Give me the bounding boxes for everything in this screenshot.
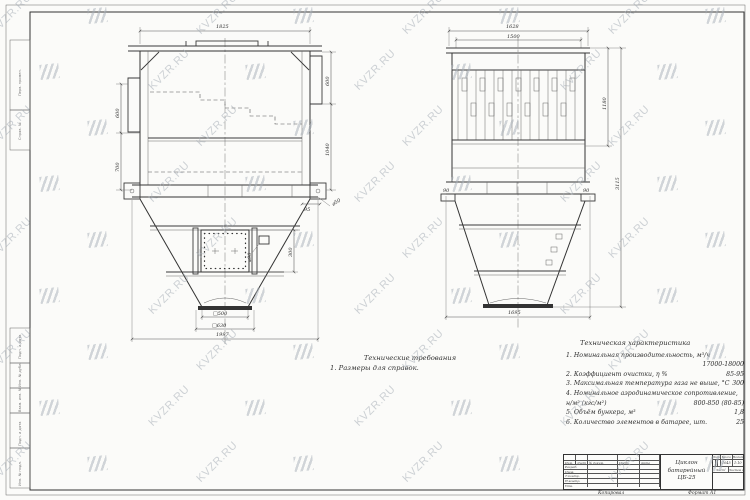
drawing-sheet: { "watermark": { "text": "KVZR.RU" }, "t…	[0, 0, 750, 500]
format-caption: Формат А1	[688, 491, 716, 496]
col-list: Лист	[576, 461, 588, 465]
dim-front-inner-width: 1500	[507, 34, 521, 40]
mass-value: 1045	[721, 460, 732, 466]
item-value: 800-850 (80-85)	[694, 399, 744, 409]
sheets-label: Листов 1	[729, 467, 744, 472]
dim-door-handle: ⌀90	[247, 252, 253, 262]
item-label: 3. Максимальная температура газа не выше…	[566, 380, 730, 387]
item-label: 2. Коэффициент очистки, η %	[566, 371, 667, 378]
dim-corner-right: 90	[583, 188, 590, 194]
margin-label: Взам. инв. №	[18, 387, 22, 412]
hopper-ladder	[546, 234, 562, 265]
lit-label: Лит.	[713, 455, 721, 459]
technical-characteristics: Техническая характеристика 1. Номинальна…	[566, 339, 744, 427]
item-value: 85-95	[726, 370, 744, 380]
title-block-signatures: Изм. Лист № докум. Подп. Дата Разраб. Пр…	[564, 455, 661, 489]
col-podp: Подп.	[618, 461, 640, 465]
row-tkontr: Т.контр.	[564, 474, 588, 478]
row-utv: Утв.	[564, 484, 588, 488]
tech-char-item: 3. Максимальная температура газа не выше…	[566, 379, 744, 389]
margin-label: Перв. примен.	[18, 69, 22, 96]
dim-upper-height: 1180	[602, 96, 608, 110]
doc-title-line: Циклон	[661, 460, 712, 468]
dim-total-height: 3115	[615, 177, 621, 190]
item-label: 5. Объём бункера, м³	[566, 409, 636, 416]
dim-outlet-height: 600	[325, 76, 331, 86]
margin-label: Инв. № дубл.	[18, 362, 22, 387]
cyclone-side-view: ⌀90 1825 600 700 600 1040 95 ⌀50 300	[115, 24, 343, 344]
dim-outlet-square: □500	[213, 311, 228, 317]
row-razrab: Разраб.	[564, 465, 588, 469]
title-block-attrs: Лит. Масса Масштаб 1045 1:10 Лист Листов…	[713, 455, 743, 489]
scale-label: Масштаб	[733, 455, 744, 459]
tech-char-item: 4. Номинальное аэродинамическое сопротив…	[566, 389, 744, 408]
dim-flange-square: □630	[212, 323, 227, 329]
sheet-label: Лист	[713, 467, 729, 472]
margin-label: Инв. № подл.	[18, 461, 22, 486]
tech-req-title: Технические требования	[330, 353, 490, 363]
copied-caption: Копировал	[598, 491, 624, 496]
item-label: 6. Количество элементов в батарее, шт.	[566, 419, 707, 426]
element-spacers	[462, 78, 575, 116]
dim-corner-offset: 95	[304, 207, 310, 213]
item-value: 17000-18000	[703, 360, 744, 370]
dim-inlet-height: 600	[115, 108, 121, 118]
dim-corner-left: 90	[443, 188, 450, 194]
scale-value: 1:10	[733, 460, 743, 466]
item-value: 25	[736, 418, 744, 428]
dim-hopper-span: 1695	[508, 310, 521, 316]
cyclone-front-view: 1628 1500 90 90	[441, 24, 626, 330]
tech-char-item: 5. Объём бункера, м³ 1,8	[566, 408, 744, 418]
dim-front-top-width: 1628	[506, 24, 519, 30]
margin-label: Подп. и дата	[18, 422, 22, 446]
col-izm: Изм.	[564, 461, 576, 465]
dim-bolt-hole: ⌀50	[331, 197, 343, 207]
row-nkontr: Н.контр.	[564, 479, 588, 483]
document-title: Циклон батарейный ЦБ-25	[661, 455, 713, 489]
doc-title-line: батарейный	[661, 468, 712, 476]
dim-door-height: 300	[288, 247, 294, 257]
title-block: Изм. Лист № докум. Подп. Дата Разраб. Пр…	[563, 454, 744, 490]
row-prov: Пров.	[564, 470, 588, 474]
margin-label: Справ. №	[18, 122, 22, 140]
item-value: 300	[732, 379, 744, 389]
dim-overall-width: 1997	[216, 332, 230, 338]
tech-char-item: 1. Номинальная производительность, м³/ч …	[566, 351, 744, 370]
item-value: 1,8	[734, 408, 744, 418]
tech-char-title: Техническая характеристика	[580, 339, 744, 349]
dim-body-height: 1040	[325, 142, 331, 156]
tech-char-item: 6. Количество элементов в батарее, шт. 2…	[566, 418, 744, 428]
tech-char-item: 2. Коэффициент очистки, η % 85-95	[566, 370, 744, 380]
col-docnum: № докум.	[588, 461, 618, 465]
col-data: Дата	[640, 461, 660, 465]
item-label: 1. Номинальная производительность, м³/ч	[566, 352, 710, 359]
doc-title-line: ЦБ-25	[661, 475, 712, 483]
dim-lower-height: 700	[115, 162, 121, 172]
margin-stamp-boxes	[10, 40, 30, 488]
technical-requirements: Технические требования 1. Размеры для сп…	[330, 353, 490, 373]
dim-body-width: 1825	[216, 24, 229, 30]
mass-label: Масса	[721, 455, 733, 459]
margin-label: Подп. и дата	[18, 335, 22, 359]
tech-req-item: 1. Размеры для справок.	[330, 363, 490, 373]
